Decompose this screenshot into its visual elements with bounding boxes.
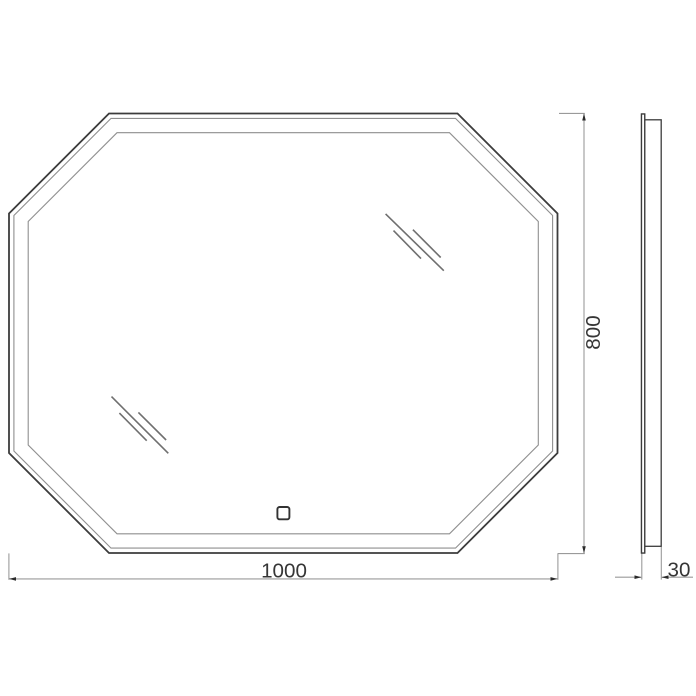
svg-text:800: 800 [582, 315, 605, 349]
svg-text:30: 30 [668, 559, 691, 582]
svg-text:1000: 1000 [261, 559, 307, 582]
